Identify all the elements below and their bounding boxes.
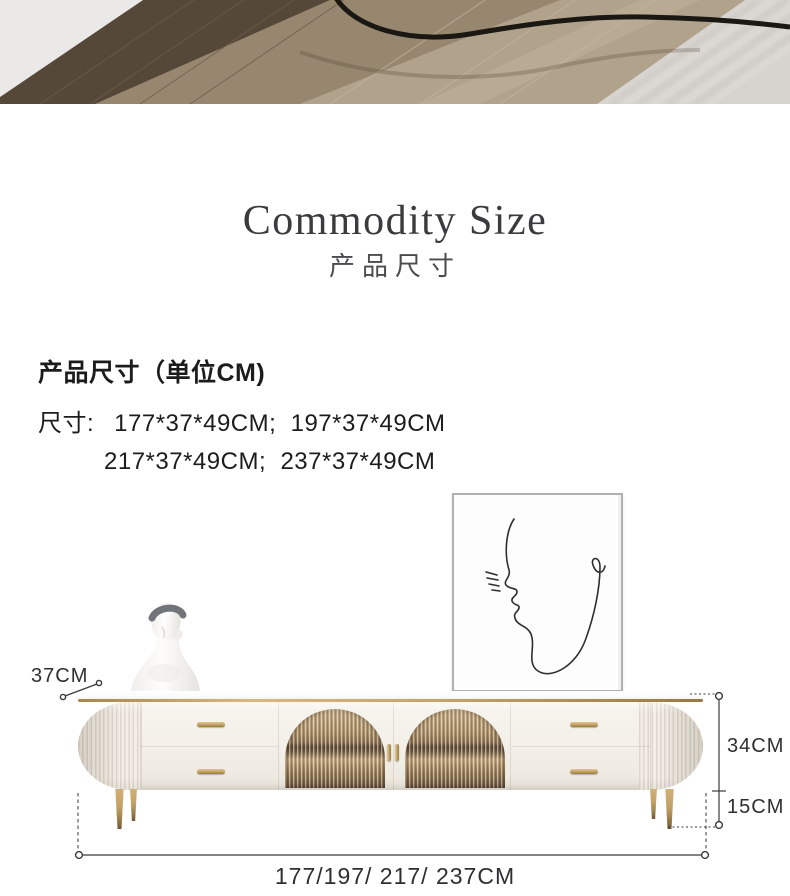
depth-label: 37CM [31,665,88,688]
sculpture-bust [118,601,214,693]
hero-photo [0,0,790,104]
size-values-1: 177*37*49CM; 197*37*49CM [114,410,445,437]
eyelash-strokes [486,572,500,591]
line-art-face [454,495,621,690]
picture-frame [452,493,623,692]
leg-height-label: 15CM [727,796,784,819]
width-label: 177/197/ 217/ 237CM [0,863,790,890]
size-line-2: 217*37*49CM; 237*37*49CM [104,448,435,476]
product-detail-page: Commodity Size 产品尺寸 产品尺寸（单位CM) 尺寸:177*37… [0,0,790,896]
cabinet-curvature-shading [78,702,703,790]
size-line-1: 尺寸:177*37*49CM; 197*37*49CM [38,403,446,438]
body-height-label: 34CM [727,735,784,758]
cabinet-leg [649,789,658,819]
bust-torso [131,632,200,693]
tv-cabinet-body [78,702,703,790]
size-label: 尺寸: [38,410,114,437]
specs-heading: 产品尺寸（单位CM) [38,353,265,389]
cabinet-leg [129,789,138,821]
cabinet-leg [114,789,125,829]
size-values-2: 217*37*49CM; 237*37*49CM [104,448,435,475]
bust-chest-shading [147,664,181,682]
page-title: Commodity Size [0,197,790,245]
page-subtitle: 产品尺寸 [0,246,790,283]
cabinet-leg [664,789,675,829]
